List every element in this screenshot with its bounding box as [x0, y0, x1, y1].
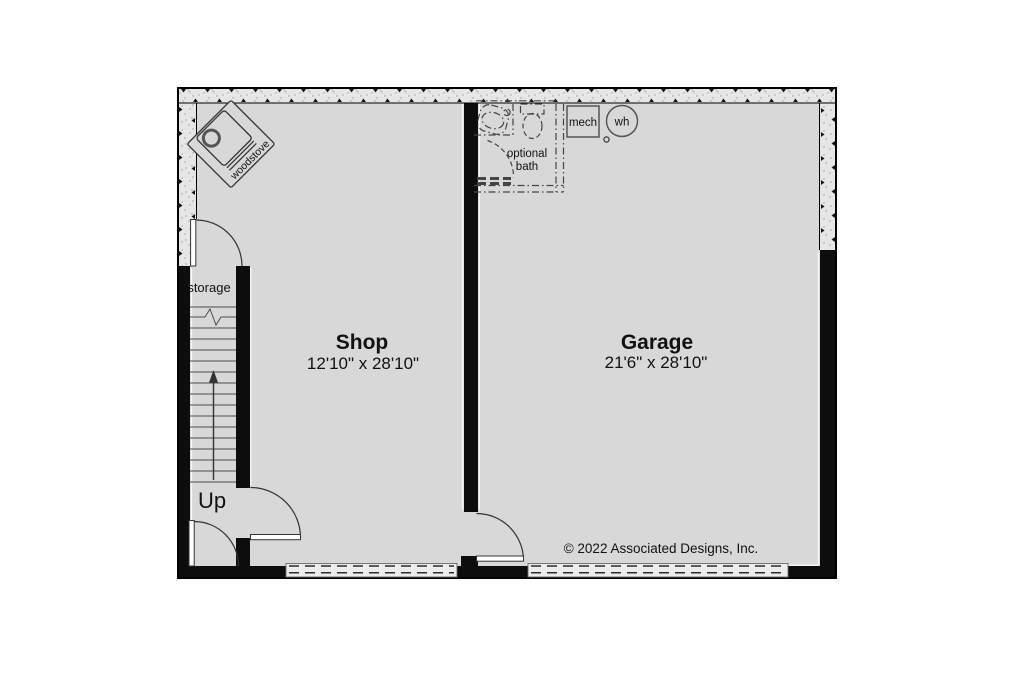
- garage-room-dimensions: 21'6" x 28'10": [605, 353, 708, 372]
- stairs-up-label: Up: [198, 488, 226, 513]
- water-heater-label: wh: [614, 117, 630, 129]
- bottom-wall-left-segment: [178, 566, 286, 578]
- shop-garage-divider-wall: [464, 103, 478, 512]
- interior-floor: [190, 103, 822, 566]
- stairwell-wall-upper: [236, 266, 250, 488]
- garage-room-label: Garage: [621, 331, 693, 354]
- shop-garage-door: [286, 564, 457, 578]
- copyright-notice: © 2022 Associated Designs, Inc.: [564, 541, 759, 556]
- mech-label: mech: [569, 117, 597, 129]
- right-exterior-wall-upper: [820, 103, 836, 250]
- left-exterior-wall-lower: [178, 266, 190, 578]
- shop-room-dimensions: 12'10" x 28'10": [307, 354, 419, 373]
- floor-plan-drawing: woodstove optional bath mech wh storage: [0, 0, 1024, 682]
- floor-plan-page: woodstove optional bath mech wh storage: [0, 0, 1024, 682]
- shop-room-label: Shop: [336, 331, 389, 354]
- optional-bath-label-line2: bath: [516, 161, 538, 173]
- right-exterior-wall-lower: [820, 250, 836, 578]
- divider-wall-stub: [461, 556, 478, 570]
- optional-bath-label-line1: optional: [507, 148, 547, 160]
- garage-garage-door: [528, 564, 788, 578]
- storage-label: storage: [187, 280, 230, 295]
- bottom-wall-right-segment: [788, 566, 836, 578]
